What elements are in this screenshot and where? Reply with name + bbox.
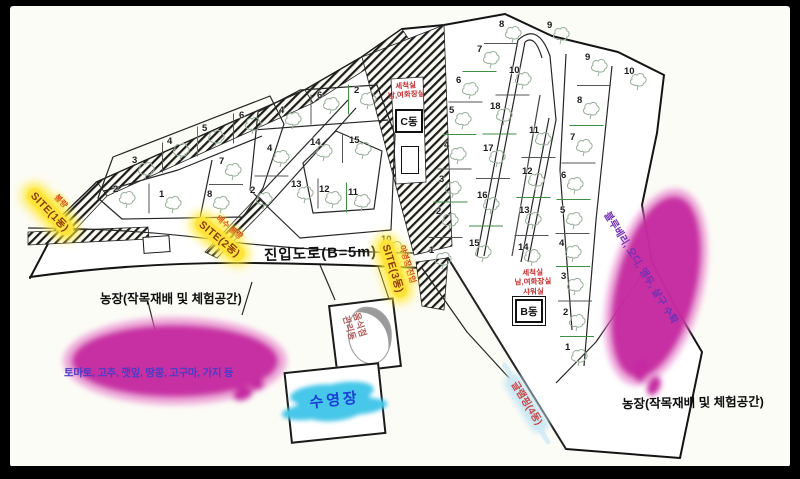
farm-blob-left <box>63 317 287 405</box>
farm-label-left: 농장(작목재배 및 체험공간) <box>100 288 242 307</box>
note-b: 세척실남,여화장실샤워실 <box>501 267 566 297</box>
frame-top <box>0 0 800 6</box>
frame-bottom <box>0 466 800 479</box>
crops-list-left: 토마토, 고추, 깻잎, 땅콩, 고구마, 가지 등 <box>64 365 292 380</box>
frame-right <box>790 0 800 479</box>
building-b-box: B동 <box>515 299 543 323</box>
entry-road-label: 진입도로(B=5m) <box>264 240 378 265</box>
building-c-box: C동 <box>395 109 423 133</box>
pool-block: 수영장 <box>283 362 386 444</box>
frame-left <box>0 0 10 479</box>
site-map: 3456217846242141513121187654321101817161… <box>0 0 800 479</box>
utility-box <box>401 146 419 174</box>
farm-label-right: 농장(작목재배 및 체험공간) <box>622 391 764 412</box>
road-hut <box>142 235 170 254</box>
